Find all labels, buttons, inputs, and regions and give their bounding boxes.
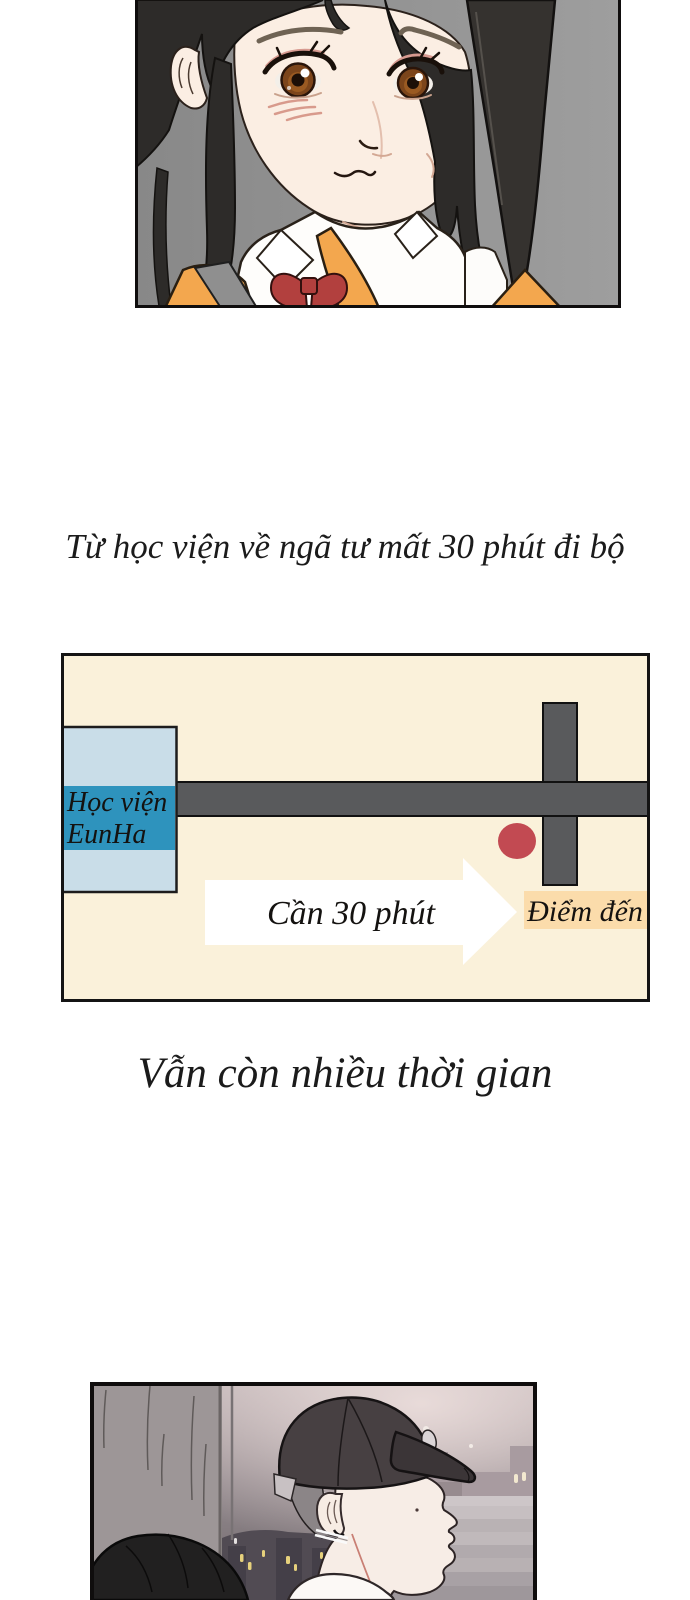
girl-portrait-art: [135, 0, 621, 308]
location-marker-dot: [498, 823, 536, 859]
arrow-label: Cần 30 phút: [267, 895, 437, 932]
night-scene-art: [90, 1382, 537, 1600]
narration-caption-1: Từ học viện về ngã tư mất 30 phút đi bộ: [0, 521, 690, 573]
webtoon-page: { "page": { "width": 690, "height": 1600…: [0, 0, 690, 1600]
route-map-art: Học viện EunHa Cần 30 phút Điểm đến: [61, 653, 650, 1002]
destination-label: Điểm đến: [526, 895, 643, 928]
panel-man-night: [90, 1382, 537, 1600]
academy-building: Học viện EunHa: [63, 727, 177, 892]
panel-route-map: Học viện EunHa Cần 30 phút Điểm đến: [61, 653, 650, 1002]
road-horizontal: [174, 782, 649, 816]
academy-label-line1: Học viện: [66, 787, 167, 818]
destination: Điểm đến: [524, 891, 647, 929]
mole: [415, 1508, 418, 1511]
narration-caption-2: Vẫn còn nhiều thời gian: [0, 1043, 690, 1105]
academy-label-line2: EunHa: [66, 819, 146, 850]
panel-girl-portrait: [135, 0, 621, 308]
